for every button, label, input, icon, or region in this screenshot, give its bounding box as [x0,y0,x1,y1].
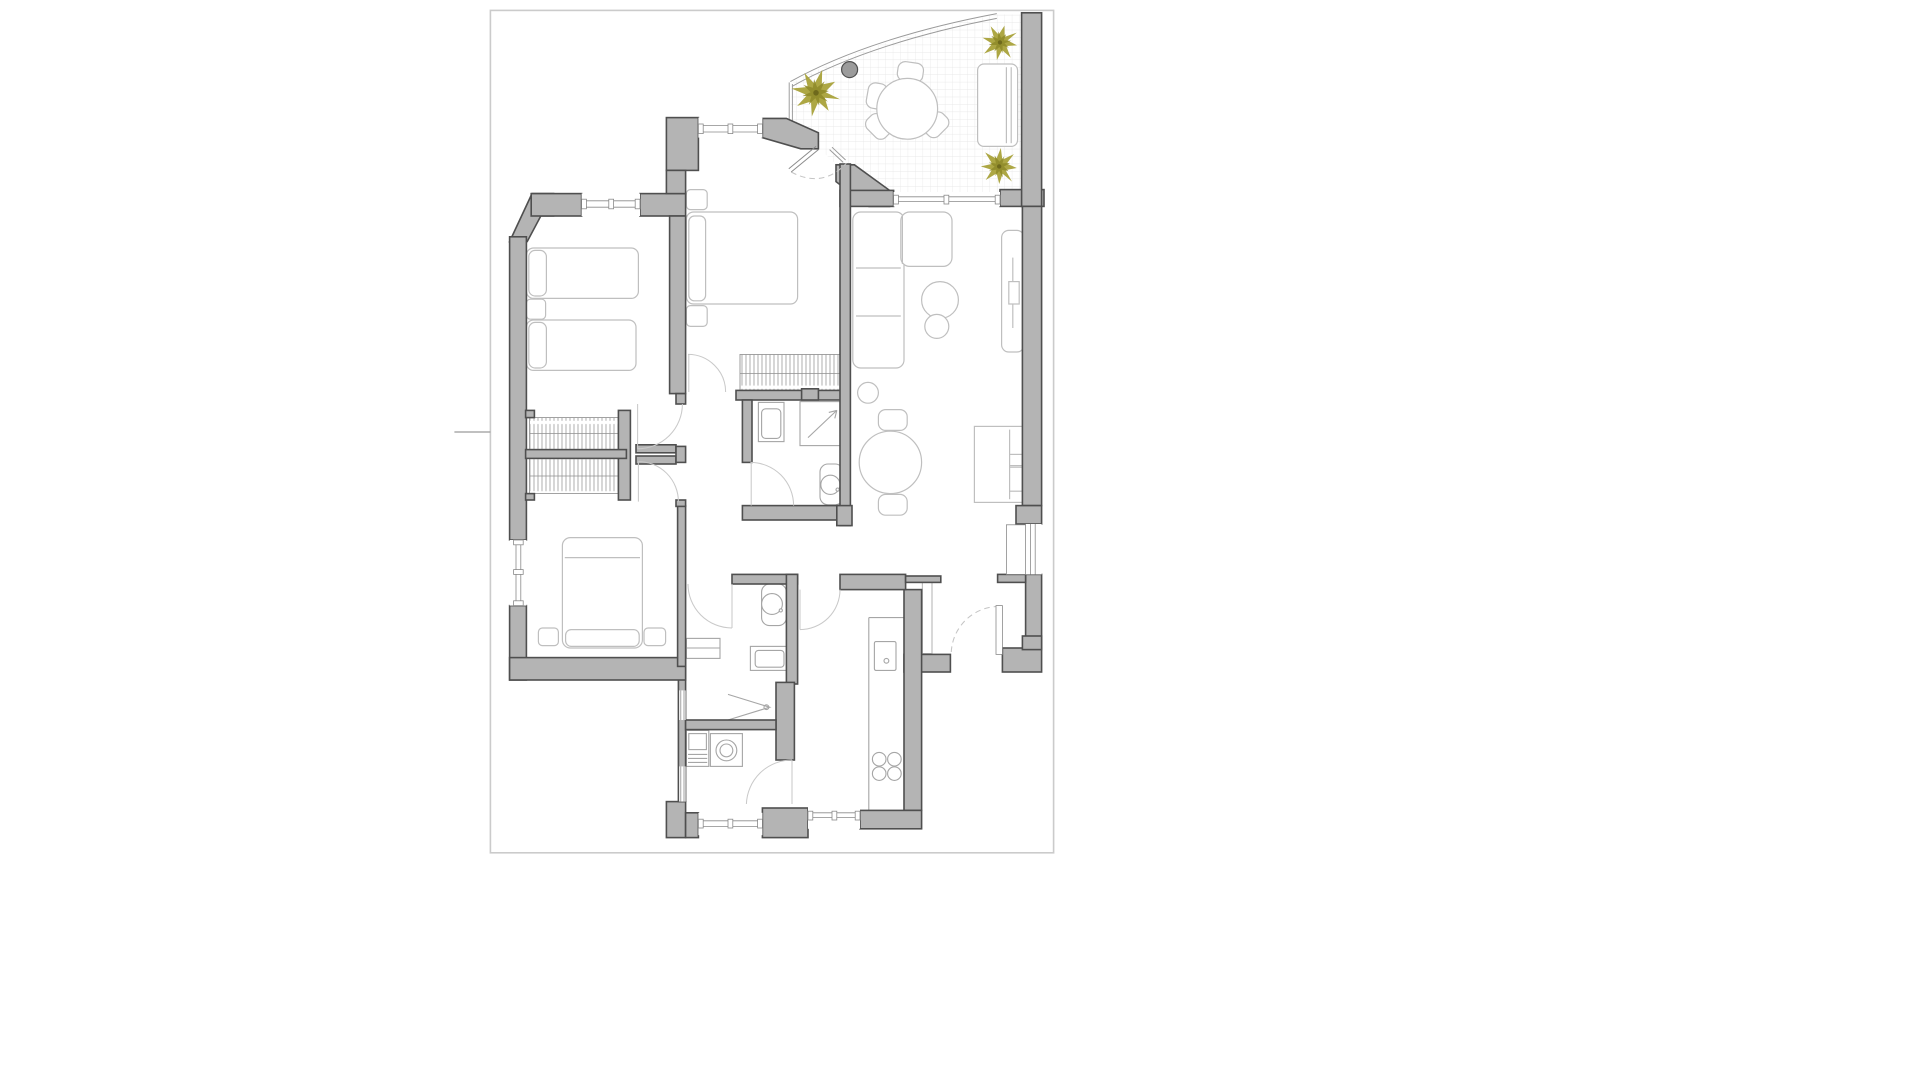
kitchen-sink [874,642,896,671]
dining-chair [878,494,907,515]
nightstand [526,299,545,319]
wall [837,506,852,526]
nightstand [644,628,666,646]
wall [776,682,794,760]
sofa-corner [901,212,952,266]
floor-plan-svg [0,0,1920,1080]
sofa-chaise [853,212,904,368]
wall [678,506,686,667]
wall [666,802,685,838]
wall [762,808,808,838]
wall [676,500,686,506]
tv [1009,282,1019,304]
dining-table [859,431,921,493]
wall [686,813,699,838]
hall-tall-unit [922,582,932,653]
wall [676,446,686,462]
wall [786,574,797,684]
pillow [529,250,547,296]
wall [736,390,848,400]
pillow [529,322,547,368]
wall [840,164,850,526]
nightstand [538,628,558,646]
wall [526,450,627,459]
wardrobe-bedroom-top-left [530,418,627,450]
window-opening [679,690,685,720]
side-table [925,314,949,338]
wall [636,456,676,464]
wall [904,590,922,811]
pillow [689,216,706,301]
wall [531,194,581,216]
wall [686,720,776,730]
wall [998,574,1026,582]
wall [526,494,535,500]
nightstand [686,306,707,327]
wardrobe-bedroom-top-middle [740,354,840,392]
wall [906,576,941,582]
wall [666,118,698,171]
wall [526,410,535,417]
wall [802,389,819,400]
wall [742,506,848,520]
wall [1022,13,1042,207]
wall [1002,648,1041,672]
wall [666,170,685,193]
wall [742,400,752,462]
wall [1016,506,1042,524]
terrace-round-table [877,78,938,139]
terrace-planter [842,62,858,78]
wall [510,237,527,540]
pouf [858,382,879,403]
wall [670,216,686,394]
nightstand [686,190,707,210]
wall [1022,206,1041,505]
floor-plan-stage [0,0,1920,1080]
wardrobe-hall [530,458,627,493]
dining-chair [878,410,907,431]
wall [676,394,686,404]
wall [510,658,686,680]
wall [640,194,686,216]
wall [860,810,922,828]
coffee-table [922,282,959,319]
entry-door-leaf [996,606,1002,655]
pillow [566,630,640,647]
laundry-fixtures [686,730,742,766]
window-opening [679,766,685,801]
window-leaf [1006,525,1025,575]
wall [1022,636,1041,650]
wall [840,574,906,589]
window-opening [1026,524,1042,574]
